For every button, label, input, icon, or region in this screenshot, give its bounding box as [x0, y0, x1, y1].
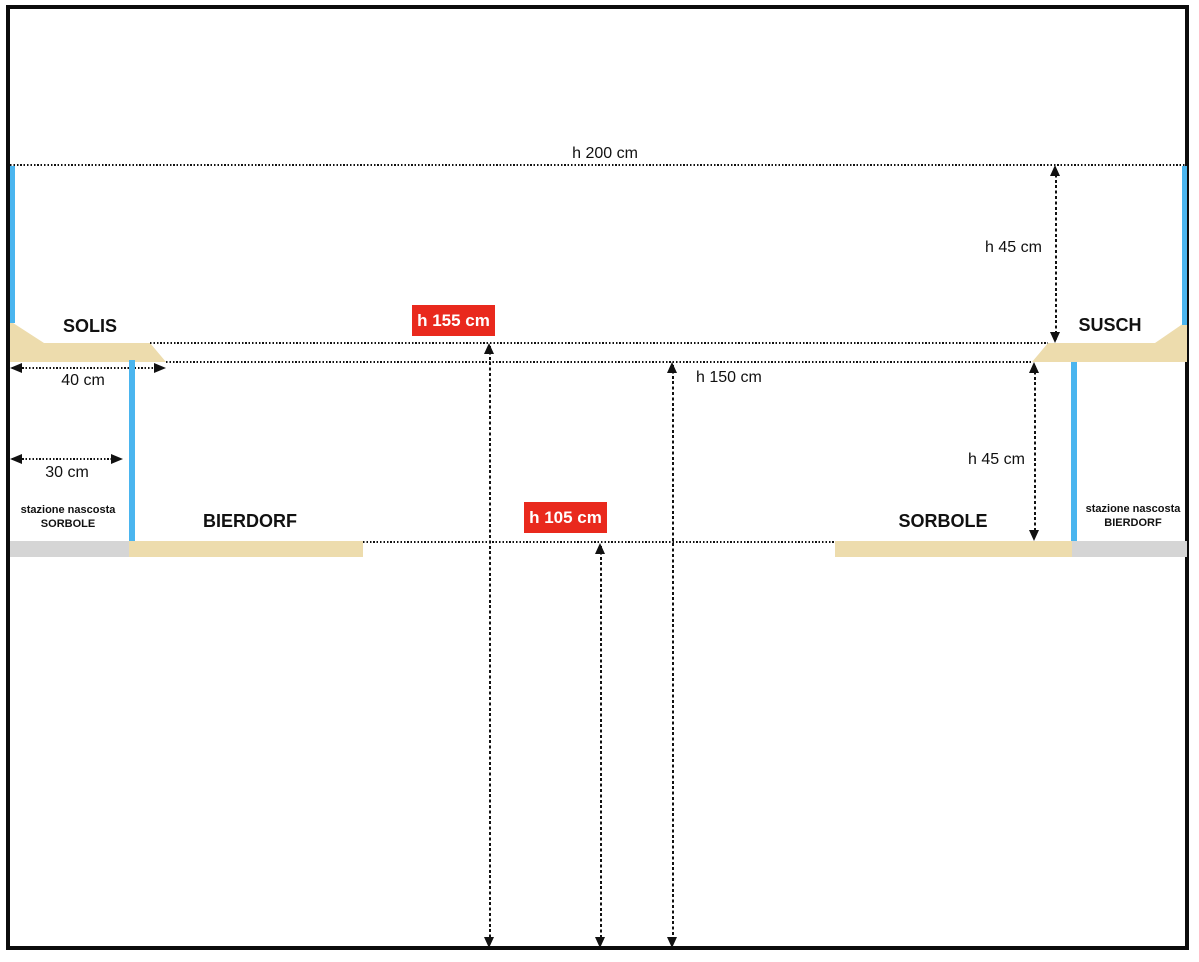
arrowhead-right-icon: [111, 454, 123, 464]
hidden-station-left-line1: stazione nascosta: [12, 503, 124, 517]
arrowhead-down-icon: [1050, 332, 1060, 343]
height-200-label: h 200 cm: [545, 145, 665, 163]
station-label-sorbole: SORBOLE: [873, 511, 1013, 532]
station-label-solis: SOLIS: [40, 316, 140, 337]
arrowhead-up-icon: [1029, 362, 1039, 373]
height-105-badge: h 105 cm: [524, 502, 607, 533]
arrowhead-up-icon: [1050, 165, 1060, 176]
hidden-station-right-caption: stazione nascosta BIERDORF: [1077, 502, 1189, 530]
depth-40-label: 40 cm: [43, 372, 123, 390]
height-150-label: h 150 cm: [696, 369, 762, 387]
hidden-station-left-caption: stazione nascosta SORBOLE: [12, 503, 124, 531]
arrowhead-up-icon: [667, 362, 677, 373]
depth-30-measure-line: [12, 458, 121, 460]
arrowhead-up-icon: [484, 343, 494, 354]
layout-height-diagram: h 200 cm h 150 cm h 45 cm h 45 cm 40 cm …: [0, 0, 1199, 962]
height-155-level-line: [150, 342, 1048, 344]
arrowhead-left-icon: [10, 363, 22, 373]
arrowhead-down-icon: [595, 937, 605, 948]
arrowhead-up-icon: [595, 543, 605, 554]
height-105-measure-line: [600, 546, 602, 942]
arrowhead-down-icon: [1029, 530, 1039, 541]
left-mid-track-bar: [129, 360, 135, 542]
right-wall-track-bar: [1182, 166, 1187, 325]
depth-30-label: 30 cm: [27, 464, 107, 482]
hidden-station-left-line2: SORBOLE: [12, 517, 124, 531]
height-150-level-line: [166, 361, 1032, 363]
upper-45-label: h 45 cm: [985, 239, 1042, 257]
hidden-sorbole-slab: [10, 541, 129, 557]
depth-40-measure-line: [12, 367, 164, 369]
height-150-measure-line: [672, 365, 674, 942]
height-200-level-line: [10, 164, 1187, 166]
hidden-station-right-line1: stazione nascosta: [1077, 502, 1189, 516]
height-155-badge: h 155 cm: [412, 305, 495, 336]
hidden-station-right-line2: BIERDORF: [1077, 516, 1189, 530]
left-wall-track-bar: [10, 166, 15, 323]
arrowhead-down-icon: [484, 937, 494, 948]
lower-45-label: h 45 cm: [968, 451, 1025, 469]
height-155-measure-line: [489, 346, 491, 942]
arrowhead-right-icon: [154, 363, 166, 373]
arrowhead-left-icon: [10, 454, 22, 464]
arrowhead-down-icon: [667, 937, 677, 948]
station-label-susch: SUSCH: [1060, 315, 1160, 336]
sorbole-slab: [835, 541, 1072, 557]
upper-45-measure-line: [1055, 169, 1057, 340]
lower-45-measure-line: [1034, 366, 1036, 530]
hidden-bierdorf-slab: [1072, 541, 1187, 557]
station-label-bierdorf: BIERDORF: [180, 511, 320, 532]
bierdorf-slab: [129, 541, 363, 557]
